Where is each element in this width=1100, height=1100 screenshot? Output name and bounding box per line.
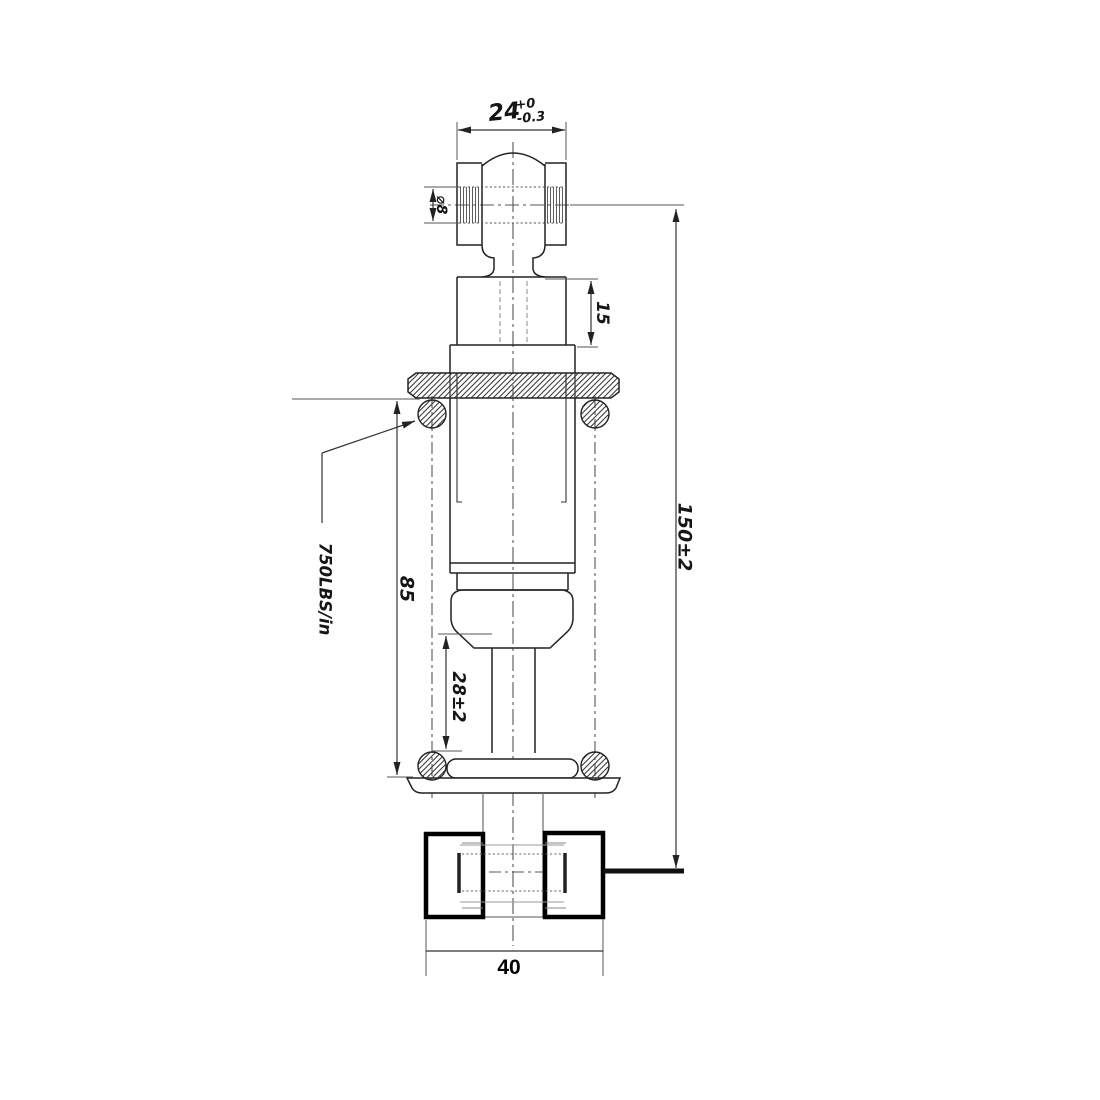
technical-drawing-canvas: 24 +0 -0.3 ⌀8 15 85 28±2 750LBS/in xyxy=(0,0,1100,1100)
centerlines xyxy=(430,142,612,946)
upper-right-bushing xyxy=(581,400,609,428)
upper-section-dimension: 15 xyxy=(545,279,612,347)
stem-left-profile xyxy=(482,245,494,277)
lower-left-bushing xyxy=(418,752,446,780)
tolerance-minus: -0.3 xyxy=(516,109,546,127)
rod-length-dimension: 28±2 xyxy=(432,634,492,751)
extension-lines xyxy=(457,122,566,160)
spring-rate-label: 750LBS/in xyxy=(316,543,335,636)
extension-lines xyxy=(545,279,598,347)
mount-right-block xyxy=(545,833,603,917)
dimension-label-40: 40 xyxy=(497,956,520,979)
cylinder-walls xyxy=(457,277,566,345)
eyelet-bore-left-face xyxy=(460,187,481,223)
top-eyelet xyxy=(457,153,566,245)
dimension-label-dia8: ⌀8 xyxy=(433,196,449,215)
dish xyxy=(407,778,620,793)
dimension-label-85: 85 xyxy=(396,576,418,602)
spring-seat-plate xyxy=(447,759,578,778)
top-width-dimension: 24 +0 -0.3 xyxy=(457,95,566,160)
dimension-label-15: 15 xyxy=(592,301,612,325)
lower-collar xyxy=(451,590,573,648)
bore-diameter-dimension: ⌀8 xyxy=(424,187,459,223)
upper-left-bushing xyxy=(418,400,446,428)
lower-right-bushing xyxy=(581,752,609,780)
flange-section xyxy=(408,373,619,398)
dimension-label-28: 28±2 xyxy=(448,671,468,722)
leader-arrow xyxy=(322,421,415,453)
bottom-mount xyxy=(426,833,603,917)
spring-rate-callout: 750LBS/in xyxy=(316,421,416,635)
mounting-flange xyxy=(408,373,619,398)
technical-drawing-page: 24 +0 -0.3 ⌀8 15 85 28±2 750LBS/in xyxy=(0,0,1100,1100)
base-width-dimension: 40 xyxy=(426,919,603,979)
body-inner-sleeve xyxy=(457,398,566,502)
mount-left-block xyxy=(426,834,483,917)
body-length-dimension: 85 xyxy=(292,399,420,777)
dimension-label-150: 150±2 xyxy=(674,503,696,572)
stem-right-profile xyxy=(533,245,545,277)
eyelet-bore-right-face xyxy=(545,187,565,223)
collar-profile xyxy=(451,590,573,648)
